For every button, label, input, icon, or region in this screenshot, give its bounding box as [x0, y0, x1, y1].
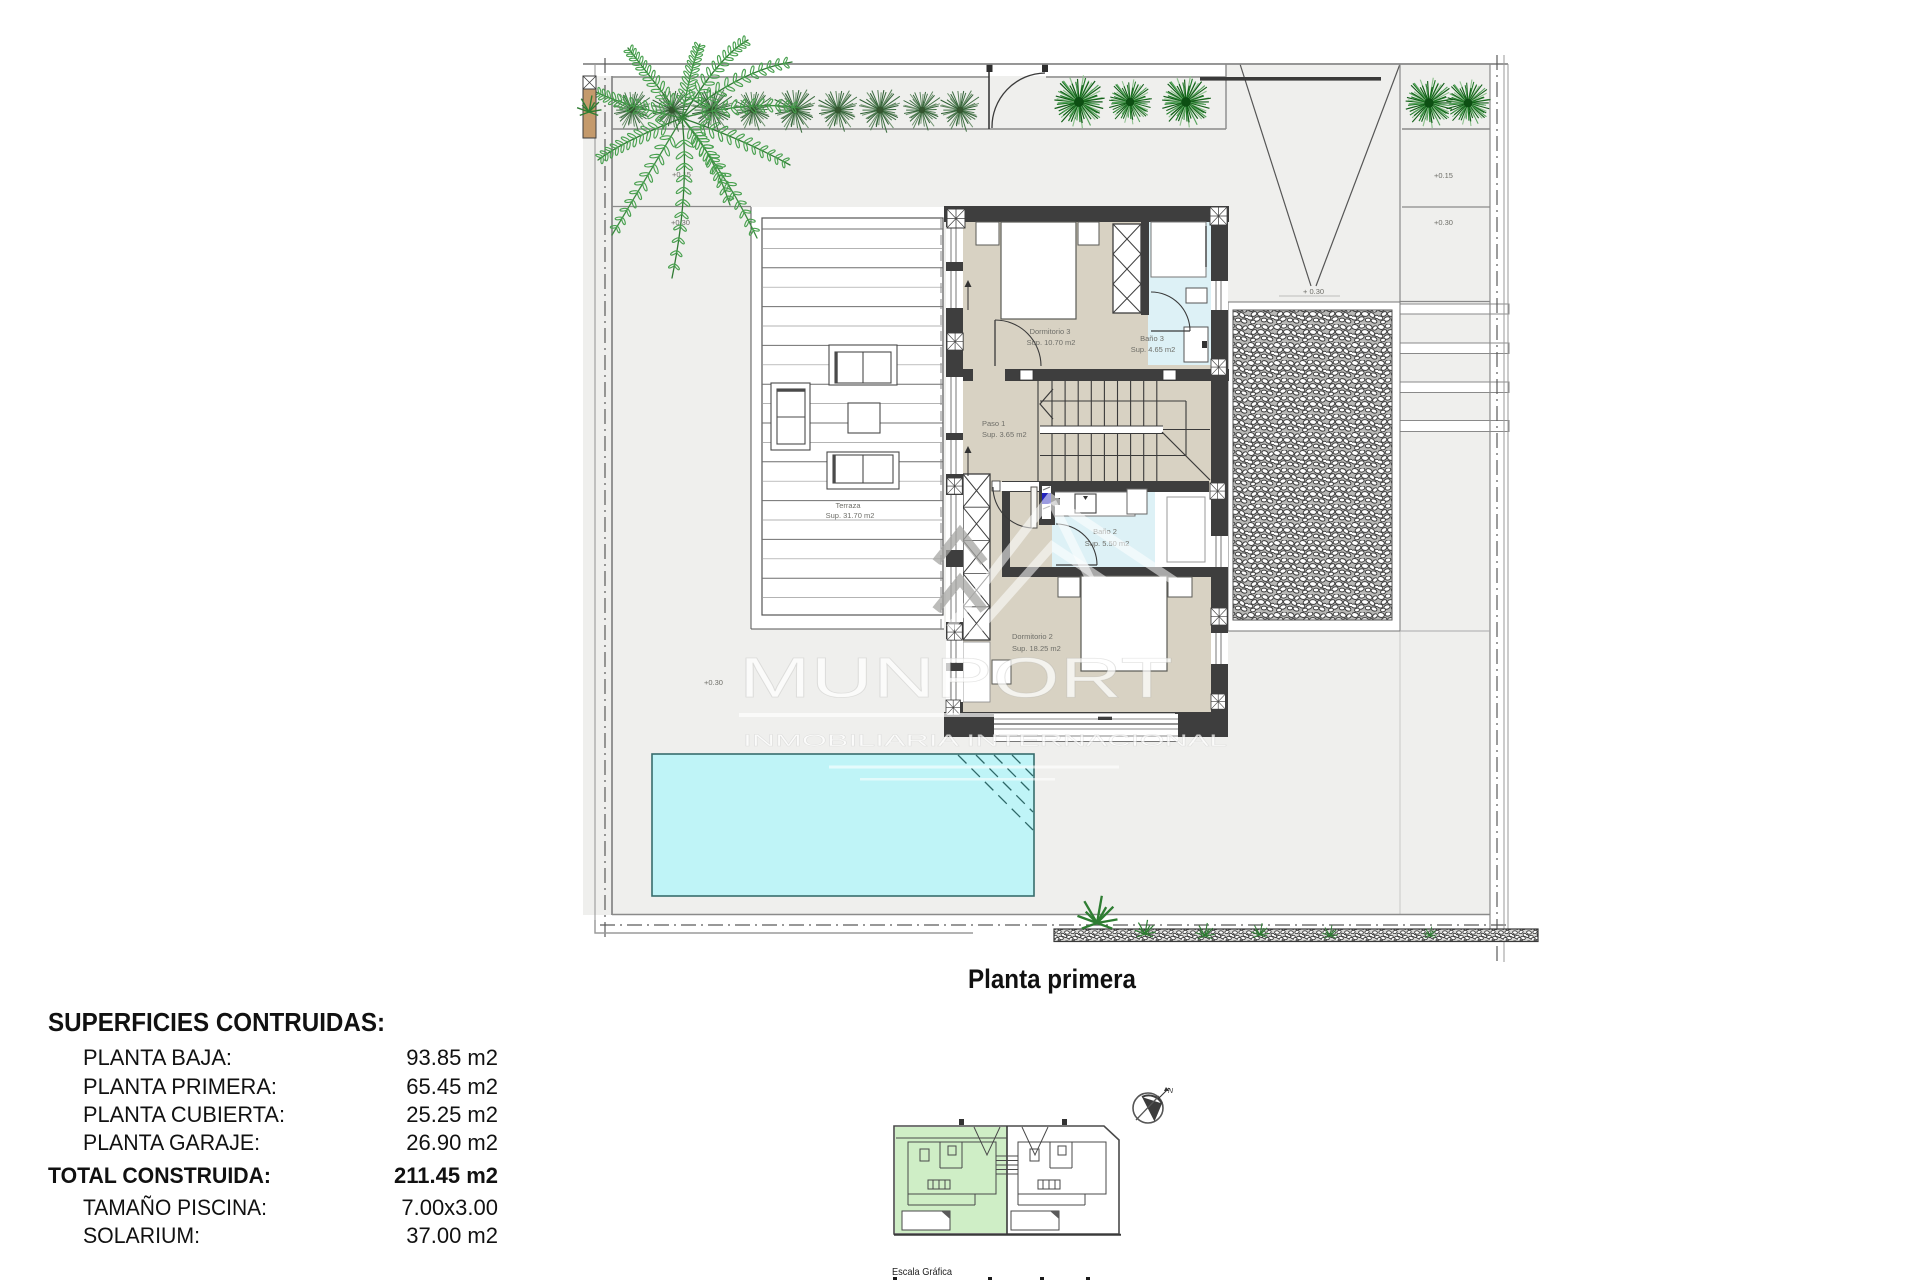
- svg-text:SOLARIUM:: SOLARIUM:: [83, 1223, 200, 1248]
- svg-text:TAMAÑO PISCINA:: TAMAÑO PISCINA:: [83, 1195, 267, 1220]
- svg-text:+0.30: +0.30: [704, 678, 723, 687]
- svg-text:25.25 m2: 25.25 m2: [406, 1102, 498, 1127]
- svg-text:PLANTA GARAJE:: PLANTA GARAJE:: [83, 1130, 260, 1155]
- svg-text:26.90 m2: 26.90 m2: [406, 1130, 498, 1155]
- svg-text:PLANTA BAJA:: PLANTA BAJA:: [83, 1045, 232, 1070]
- svg-text:+0.30: +0.30: [1434, 218, 1453, 227]
- svg-text:Paso 1: Paso 1: [982, 419, 1005, 428]
- svg-text:Dormitorio 2: Dormitorio 2: [1012, 632, 1053, 641]
- svg-text:Sup. 10.70 m2: Sup. 10.70 m2: [1027, 338, 1076, 347]
- svg-text:SUPERFICIES CONTRUIDAS:: SUPERFICIES CONTRUIDAS:: [48, 1009, 385, 1037]
- svg-text:Sup. 3.65 m2: Sup. 3.65 m2: [982, 430, 1027, 439]
- svg-text:Dormitorio 3: Dormitorio 3: [1030, 327, 1071, 336]
- svg-text:Sup. 31.70 m2: Sup. 31.70 m2: [826, 511, 875, 520]
- svg-text:Baño 3: Baño 3: [1140, 334, 1164, 343]
- svg-text:INMOBILIARIA INTERNACIONAL: INMOBILIARIA INTERNACIONAL: [743, 731, 1227, 750]
- svg-text:Terraza: Terraza: [835, 501, 861, 510]
- svg-text:Planta primera: Planta primera: [968, 964, 1137, 994]
- svg-text:+0.15: +0.15: [672, 170, 691, 179]
- svg-text:+ 0.30: + 0.30: [1303, 287, 1324, 296]
- svg-text:PLANTA PRIMERA:: PLANTA PRIMERA:: [83, 1074, 277, 1099]
- svg-text:37.00 m2: 37.00 m2: [406, 1223, 498, 1248]
- svg-text:65.45 m2: 65.45 m2: [406, 1074, 498, 1099]
- svg-text:Sup. 4.65 m2: Sup. 4.65 m2: [1131, 345, 1176, 354]
- svg-text:93.85 m2: 93.85 m2: [406, 1045, 498, 1070]
- svg-text:211.45 m2: 211.45 m2: [394, 1163, 498, 1188]
- svg-text:MUNPORT: MUNPORT: [739, 646, 1173, 710]
- svg-text:TOTAL CONSTRUIDA:: TOTAL CONSTRUIDA:: [48, 1163, 271, 1188]
- svg-text:7.00x3.00: 7.00x3.00: [401, 1195, 498, 1220]
- svg-text:+0.15: +0.15: [1434, 171, 1453, 180]
- svg-text:PLANTA CUBIERTA:: PLANTA CUBIERTA:: [83, 1102, 285, 1127]
- svg-text:N: N: [1168, 1088, 1174, 1095]
- svg-text:Escala Gráfica: Escala Gráfica: [892, 1266, 952, 1278]
